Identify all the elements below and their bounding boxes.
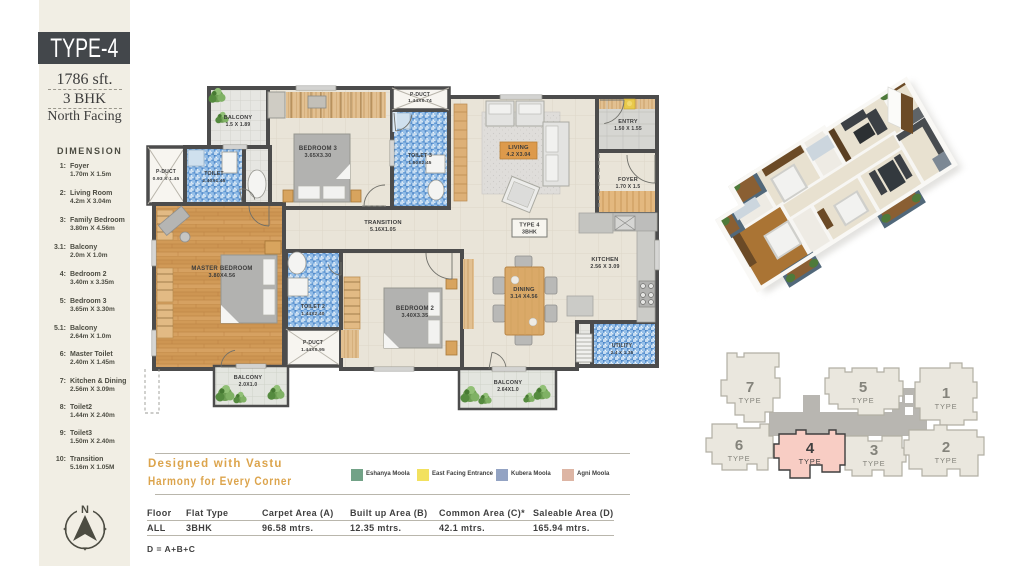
- svg-text:1: 1: [942, 385, 950, 402]
- svg-text:6: 6: [735, 437, 743, 454]
- svg-text:MASTER BEDROOM: MASTER BEDROOM: [191, 266, 252, 272]
- svg-text:BALCONY: BALCONY: [494, 380, 523, 386]
- svg-text:TYPE: TYPE: [852, 396, 875, 405]
- svg-text:2.4 X 1.35: 2.4 X 1.35: [611, 350, 634, 355]
- svg-text:2.0X1.0: 2.0X1.0: [239, 382, 258, 388]
- svg-text:TOILET: TOILET: [204, 171, 224, 177]
- svg-text:TOILET 3: TOILET 3: [408, 153, 432, 159]
- svg-text:3.14 X4.56: 3.14 X4.56: [510, 294, 538, 300]
- svg-text:TYPE: TYPE: [739, 396, 762, 405]
- svg-text:P-DUCT: P-DUCT: [303, 340, 323, 346]
- svg-text:UTILITY: UTILITY: [612, 343, 633, 349]
- svg-text:TYPE: TYPE: [728, 454, 751, 463]
- svg-text:2: 2: [942, 439, 950, 456]
- svg-text:1.50X2.45: 1.50X2.45: [408, 160, 431, 165]
- svg-text:1.44X0.74: 1.44X0.74: [408, 98, 432, 104]
- svg-text:3.65X3.30: 3.65X3.30: [305, 153, 332, 159]
- svg-text:3: 3: [870, 442, 878, 459]
- svg-text:3.80X4.56: 3.80X4.56: [209, 273, 236, 279]
- svg-text:TYPE: TYPE: [935, 456, 958, 465]
- svg-text:P-DUCT: P-DUCT: [410, 92, 430, 98]
- svg-text:DINING: DINING: [513, 287, 535, 293]
- svg-text:1.44X2.40: 1.44X2.40: [301, 311, 324, 316]
- svg-text:KITCHEN: KITCHEN: [591, 257, 618, 263]
- svg-text:1.50 X 1.55: 1.50 X 1.55: [614, 126, 642, 132]
- svg-text:1.44X0.95: 1.44X0.95: [301, 347, 325, 353]
- svg-text:BEDROOM 3: BEDROOM 3: [299, 146, 338, 152]
- svg-text:1.70 X 1.5: 1.70 X 1.5: [616, 184, 641, 190]
- svg-text:BALCONY: BALCONY: [224, 115, 253, 121]
- svg-text:4: 4: [806, 440, 815, 457]
- svg-text:5: 5: [859, 379, 867, 396]
- svg-text:3.40X3.35: 3.40X3.35: [402, 313, 429, 319]
- svg-text:LIVING: LIVING: [508, 145, 529, 151]
- svg-text:P-DUCT: P-DUCT: [156, 169, 176, 175]
- svg-text:TYPE 4: TYPE 4: [519, 223, 540, 229]
- svg-text:5.16X1.05: 5.16X1.05: [370, 227, 396, 233]
- svg-text:BEDROOM 2: BEDROOM 2: [396, 306, 435, 312]
- svg-text:3BHK: 3BHK: [522, 230, 537, 236]
- svg-text:4.2 X3.04: 4.2 X3.04: [506, 152, 530, 158]
- svg-text:TYPE: TYPE: [799, 457, 822, 466]
- svg-text:1.5 X 1.89: 1.5 X 1.89: [226, 122, 251, 128]
- svg-text:FOYER: FOYER: [618, 177, 638, 183]
- svg-text:TRANSITION: TRANSITION: [364, 220, 401, 226]
- svg-text:TOILET 2: TOILET 2: [301, 304, 325, 310]
- svg-text:TYPE: TYPE: [935, 402, 958, 411]
- svg-text:TYPE: TYPE: [863, 459, 886, 468]
- svg-text:0.93 X 1.45: 0.93 X 1.45: [153, 176, 180, 182]
- svg-text:2.64X1.0: 2.64X1.0: [497, 387, 519, 393]
- svg-text:7: 7: [746, 379, 754, 396]
- svg-text:BALCONY: BALCONY: [234, 375, 263, 381]
- svg-text:2.40X1.45: 2.40X1.45: [202, 178, 225, 183]
- svg-text:ENTRY: ENTRY: [618, 119, 638, 125]
- svg-text:2.56 X 3.09: 2.56 X 3.09: [590, 264, 619, 270]
